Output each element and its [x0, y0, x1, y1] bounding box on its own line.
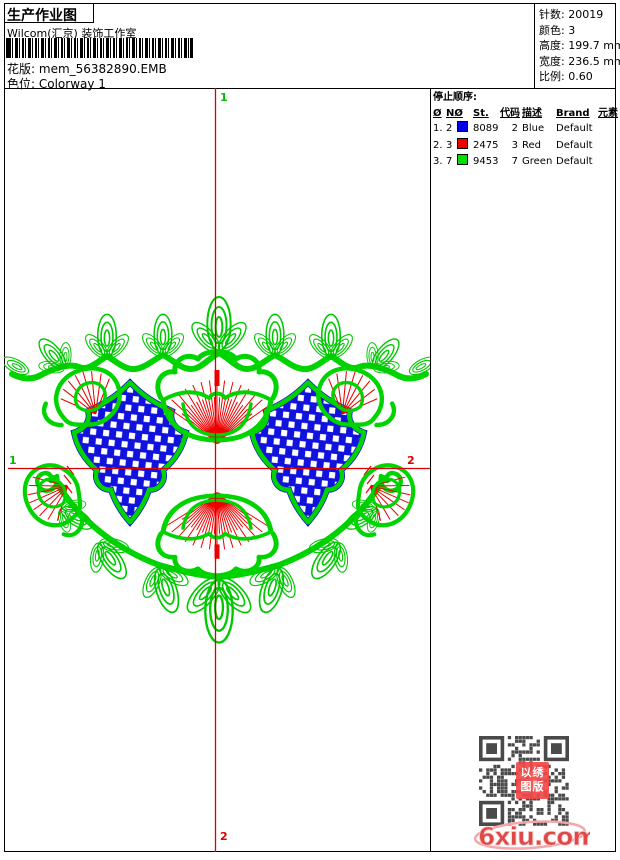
tulip-bottom	[158, 492, 276, 575]
marker-left: 1	[9, 454, 17, 467]
marker-bottom: 2	[220, 830, 228, 843]
table-row: 2.324753RedDefault	[433, 138, 615, 155]
design-info-box: 针数: 20019 颜色: 3 高度: 199.7 mm 宽度: 236.5 m…	[539, 7, 620, 85]
stitch-count-line: 针数: 20019	[539, 7, 620, 23]
barcode	[6, 38, 193, 58]
color-swatch	[457, 121, 468, 132]
header-divider	[534, 3, 535, 89]
stop-sequence-title: 停止顺序:	[433, 91, 615, 106]
stop-sequence-table: 停止顺序: ØNØSt.代码描述Brand元素 1.280892BlueDefa…	[433, 91, 615, 171]
pattern-value: mem_56382890.EMB	[39, 62, 167, 76]
stop-sequence-header-row: ØNØSt.代码描述Brand元素	[433, 107, 615, 122]
color-count-line: 颜色: 3	[539, 23, 620, 39]
watermark-stamp: 以绣 图版	[516, 762, 549, 799]
site-logo: 6xiu.com	[472, 818, 590, 856]
lattice-diamond-left	[74, 383, 186, 523]
page-title: 生产作业图	[4, 3, 94, 23]
embroidery-design	[4, 297, 430, 643]
logo-text: 6xiu.com	[478, 822, 590, 851]
panel-divider	[430, 88, 431, 852]
height-line: 高度: 199.7 mm	[539, 38, 620, 54]
pattern-label: 花版:	[7, 62, 35, 76]
color-swatch	[457, 138, 468, 149]
marker-right: 2	[407, 454, 415, 467]
design-canvas: 1 1 2 2	[4, 88, 430, 852]
scale-line: 比例: 0.60	[539, 69, 620, 85]
table-row: 3.794537GreenDefault	[433, 154, 615, 171]
table-row: 1.280892BlueDefault	[433, 121, 615, 138]
marker-top: 1	[220, 91, 228, 104]
width-line: 宽度: 236.5 mm	[539, 54, 620, 70]
color-swatch	[457, 154, 468, 165]
